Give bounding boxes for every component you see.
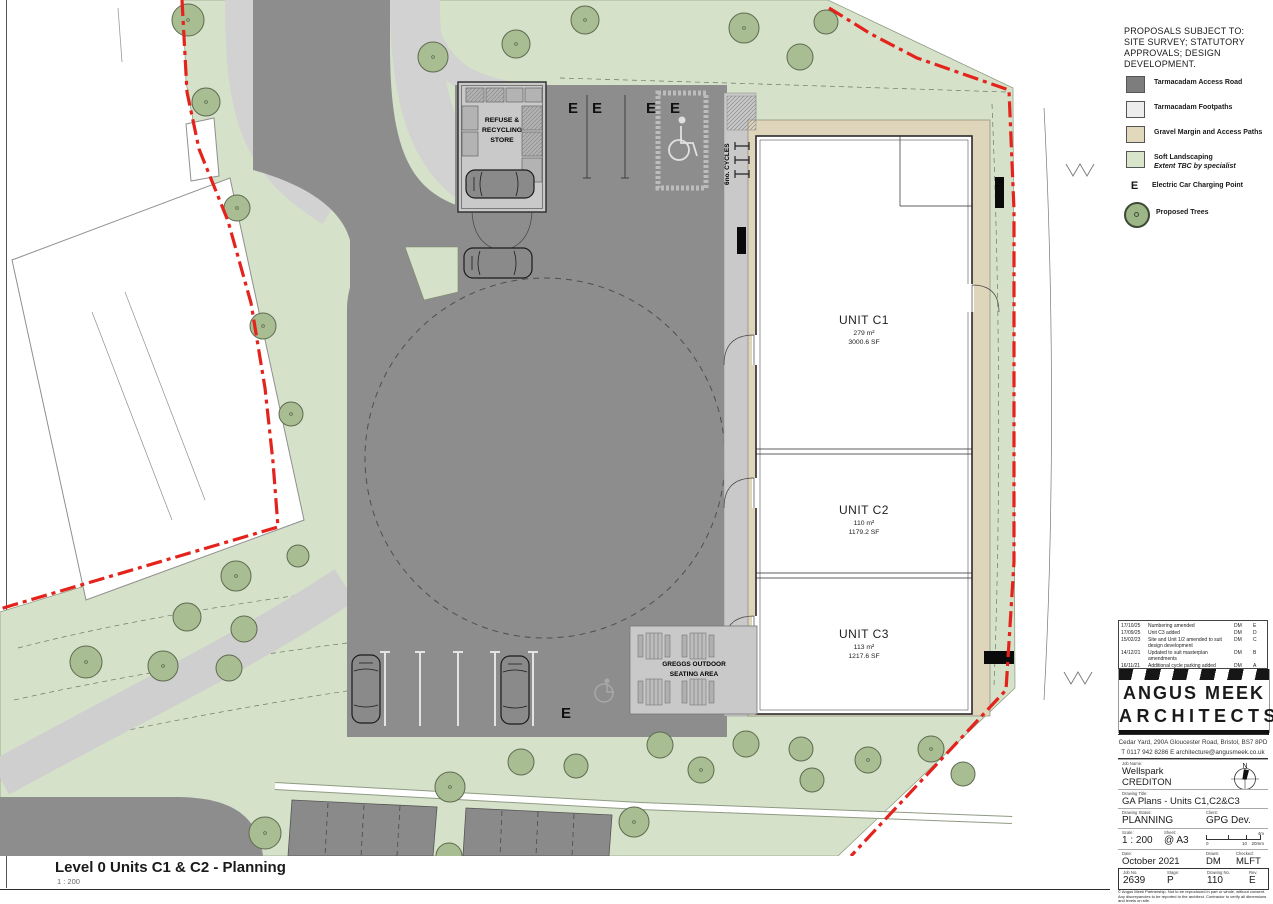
- legend-label: Electric Car Charging Point: [1152, 179, 1243, 191]
- job-name: Wellspark: [1122, 766, 1164, 777]
- footpath-swatch: [1126, 101, 1145, 118]
- scale-bar: 4m 0 10 20mm: [1206, 832, 1264, 848]
- legend-item-gravel: Gravel Margin and Access Paths: [1126, 126, 1268, 143]
- title-panel: PROPOSALS SUBJECT TO: SITE SURVEY; STATU…: [1110, 0, 1273, 900]
- legend-item-trees: Proposed Trees: [1126, 202, 1268, 228]
- existing-features-right: [1044, 108, 1094, 700]
- greggs-label-2: SEATING AREA: [670, 671, 719, 678]
- drawn-value: DM: [1206, 856, 1221, 867]
- unit-c3-name: UNIT C3: [839, 627, 889, 641]
- unit-c2-m2: 110 m²: [854, 520, 875, 527]
- revision-row: 14/12/21Updated to suit masterplan amend…: [1121, 650, 1265, 662]
- contact-line: T 0117 942 8286 E architecture@angusmeek…: [1118, 748, 1268, 758]
- firm-address: Cedar Yard, 290A Gloucester Road, Bristo…: [1118, 734, 1268, 759]
- legend-label-sub: Extent TBC by specialist: [1154, 163, 1236, 170]
- revision-table: 17/10/25Numbering amended DME 17/09/25Un…: [1118, 620, 1268, 669]
- refuse-store-label-3: STORE: [490, 137, 514, 144]
- sheet-size: @ A3: [1164, 835, 1189, 846]
- status-client-row: Drawing Status: PLANNING Client: GPG Dev…: [1118, 808, 1268, 829]
- refuse-store-label-2: RECYCLING: [482, 127, 522, 134]
- legend-item-footpaths: Tarmacadam Footpaths: [1126, 101, 1268, 118]
- ev-marker: E: [568, 100, 578, 117]
- legend-label: Proposed Trees: [1156, 202, 1209, 218]
- legend-label-main: Soft Landscaping: [1154, 154, 1213, 161]
- greggs-label-1: GREGGS OUTDOOR: [662, 661, 726, 668]
- unit-c3-m2: 113 m²: [854, 644, 875, 651]
- checked-value: MLFT: [1236, 856, 1261, 867]
- hedge-zigzag-icon: [1064, 672, 1092, 684]
- hedge-zigzag-icon: [1066, 164, 1094, 176]
- north-arrow-icon: N: [1224, 761, 1266, 791]
- legend-label: Gravel Margin and Access Paths: [1154, 126, 1262, 138]
- unit-c2-sf: 1179.2 SF: [849, 529, 880, 536]
- title-block: Job Name: Wellspark CREDITON N Drawing T…: [1118, 759, 1268, 890]
- firm-name-2: ARCHITECTS: [1119, 707, 1269, 726]
- revision-row: 17/09/25Unit C3 added DMD: [1121, 630, 1265, 636]
- drawing-title-row: Drawing Title: GA Plans - Units C1,C2&C3: [1118, 789, 1268, 809]
- unit-c1-name: UNIT C1: [839, 313, 889, 327]
- firm-logo: ANGUS MEEK ARCHITECTS: [1118, 669, 1270, 733]
- unit-c3-sf: 1217.6 SF: [848, 653, 879, 660]
- date-drawn-row: Date: October 2021 Drawn: DM Checked: ML…: [1118, 849, 1268, 869]
- proposal-notes: PROPOSALS SUBJECT TO: SITE SURVEY; STATU…: [1124, 26, 1266, 70]
- unit-c2-name: UNIT C2: [839, 503, 889, 517]
- address-line: Cedar Yard, 290A Gloucester Road, Bristo…: [1118, 738, 1268, 748]
- date-value: October 2021: [1122, 856, 1180, 867]
- drawing-title: GA Plans - Units C1,C2&C3: [1122, 796, 1240, 807]
- site-plan-svg: REFUSE & RECYCLING STORE 6no. CYCLES: [0, 0, 1110, 856]
- legend-label: Soft Landscaping Extent TBC by specialis…: [1154, 151, 1236, 171]
- legend-item-access-road: Tarmacadam Access Road: [1126, 76, 1268, 93]
- site-plan: REFUSE & RECYCLING STORE 6no. CYCLES: [0, 0, 1110, 856]
- job-name-row: Job Name: Wellspark CREDITON N: [1118, 759, 1268, 790]
- gravel-swatch: [1126, 126, 1145, 143]
- firm-name-1: ANGUS MEEK: [1119, 684, 1269, 703]
- ev-symbol: E: [1126, 179, 1143, 194]
- unit-c1-m2: 279 m²: [853, 330, 875, 337]
- drawing-view-title: Level 0 Units C1 & C2 - Planning: [55, 859, 286, 876]
- job-number: 2639: [1123, 875, 1145, 886]
- drawing-status: PLANNING: [1122, 815, 1173, 826]
- legend: Tarmacadam Access Road Tarmacadam Footpa…: [1126, 76, 1268, 236]
- revision-row: 15/02/23Site and Unit 1/2 amended to sui…: [1121, 637, 1265, 649]
- drawing-view-scale: 1 : 200: [57, 877, 80, 886]
- stage: P: [1167, 875, 1174, 886]
- logo-stripes-icon: [1119, 669, 1269, 680]
- copyright-disclaimer: © Angus Meek Partnership. Not to be repr…: [1118, 890, 1268, 904]
- ev-marker: E: [592, 100, 602, 117]
- ev-marker: E: [646, 100, 656, 117]
- ev-marker: E: [561, 705, 571, 722]
- road-swatch: [1126, 76, 1145, 93]
- drawing-footer: Level 0 Units C1 & C2 - Planning 1 : 200: [0, 856, 1110, 890]
- drawing-number: 110: [1207, 875, 1223, 886]
- scale-row: Scale: 1 : 200 Sheet: @ A3 4m 0 10 20mm: [1118, 828, 1268, 850]
- legend-item-landscaping: Soft Landscaping Extent TBC by specialis…: [1126, 151, 1268, 171]
- ev-marker: E: [670, 100, 680, 117]
- legend-label: Tarmacadam Access Road: [1154, 76, 1242, 88]
- unit-c1-sf: 3000.6 SF: [848, 339, 879, 346]
- drawing-number-box: Job No. 2639 Stage: P Drawing No. 110 Re…: [1118, 868, 1269, 890]
- job-town: CREDITON: [1122, 777, 1171, 788]
- tree-swatch-icon: [1124, 202, 1150, 228]
- scale-value: 1 : 200: [1122, 835, 1153, 846]
- legend-label: Tarmacadam Footpaths: [1154, 101, 1232, 113]
- cycles-label: 6no. CYCLES: [724, 143, 731, 185]
- landscaping-swatch: [1126, 151, 1145, 168]
- revision: E: [1249, 875, 1256, 886]
- revision-row: 17/10/25Numbering amended DME: [1121, 623, 1265, 629]
- refuse-store-label-1: REFUSE &: [485, 117, 519, 124]
- client: GPG Dev.: [1206, 815, 1251, 826]
- legend-item-ev-charging: E Electric Car Charging Point: [1126, 179, 1268, 194]
